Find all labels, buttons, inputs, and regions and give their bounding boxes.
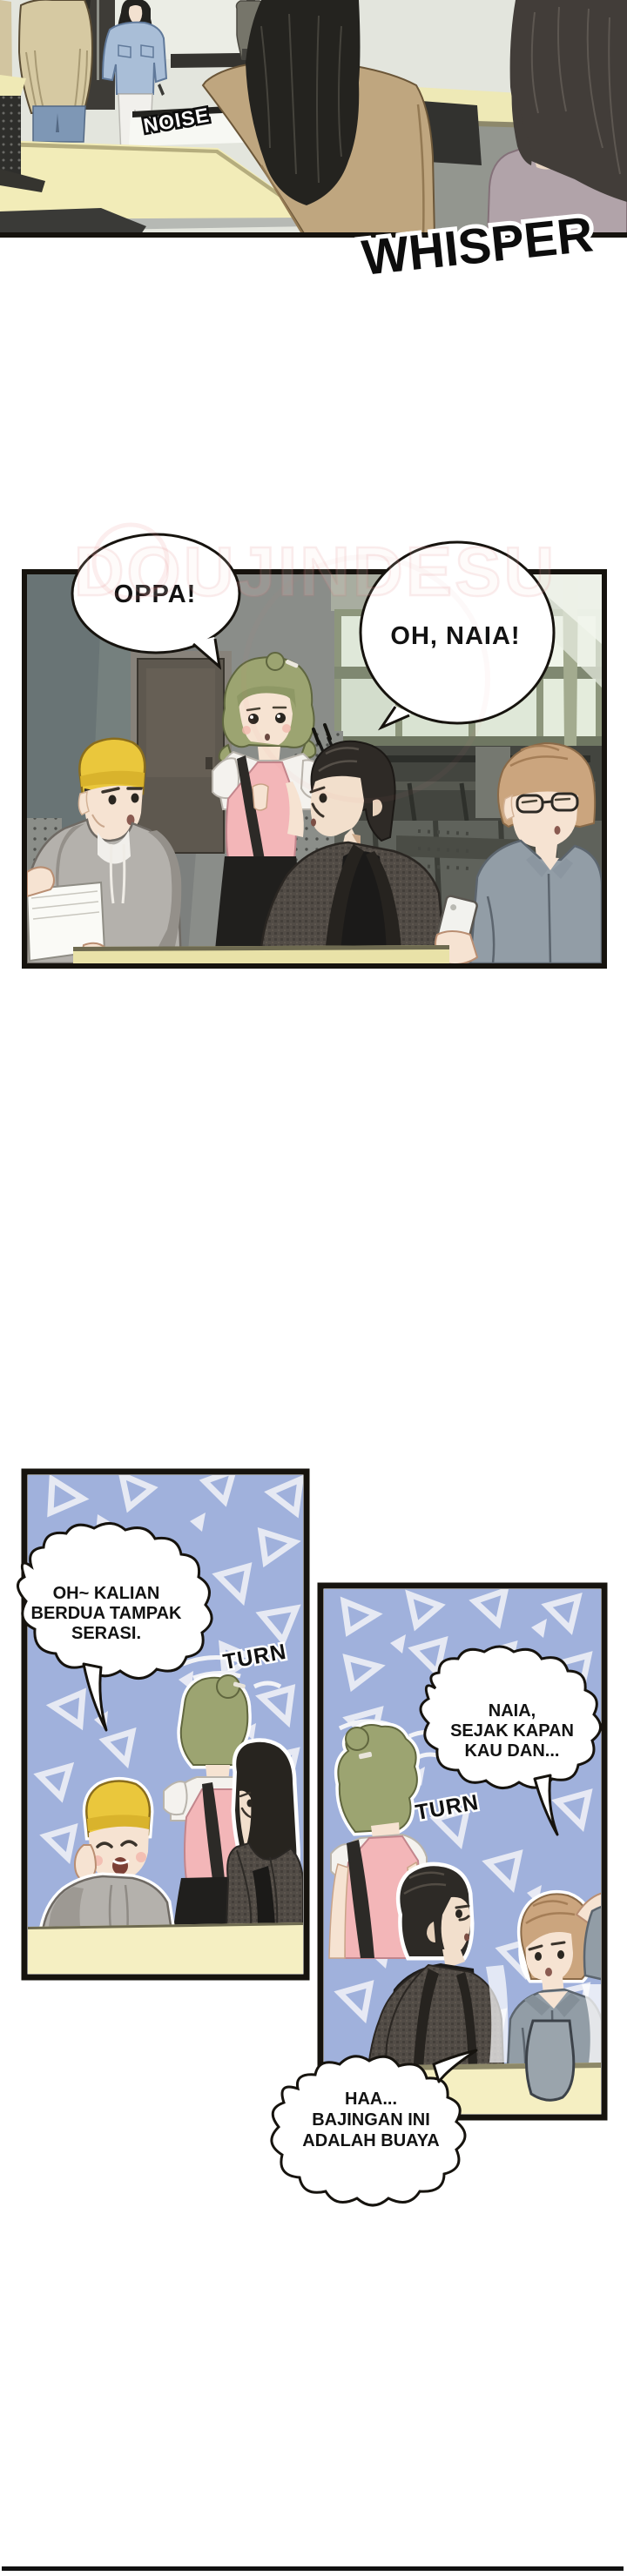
svg-text:OH, NAIA!: OH, NAIA! xyxy=(390,622,520,650)
svg-text:SEJAK KAPAN: SEJAK KAPAN xyxy=(450,1721,574,1741)
svg-text:ADALAH BUAYA: ADALAH BUAYA xyxy=(302,2131,439,2150)
svg-text:SERASI.: SERASI. xyxy=(71,1624,141,1643)
svg-text:NAIA,: NAIA, xyxy=(489,1701,536,1721)
svg-text:KAU DAN...: KAU DAN... xyxy=(465,1741,560,1761)
svg-text:HAA...: HAA... xyxy=(345,2090,397,2109)
svg-text:DOUJINDESU: DOUJINDESU xyxy=(74,533,557,610)
svg-text:BAJINGAN INI: BAJINGAN INI xyxy=(312,2110,430,2130)
svg-text:OH~ KALIAN: OH~ KALIAN xyxy=(53,1584,160,1603)
svg-text:BERDUA TAMPAK: BERDUA TAMPAK xyxy=(31,1604,183,1623)
